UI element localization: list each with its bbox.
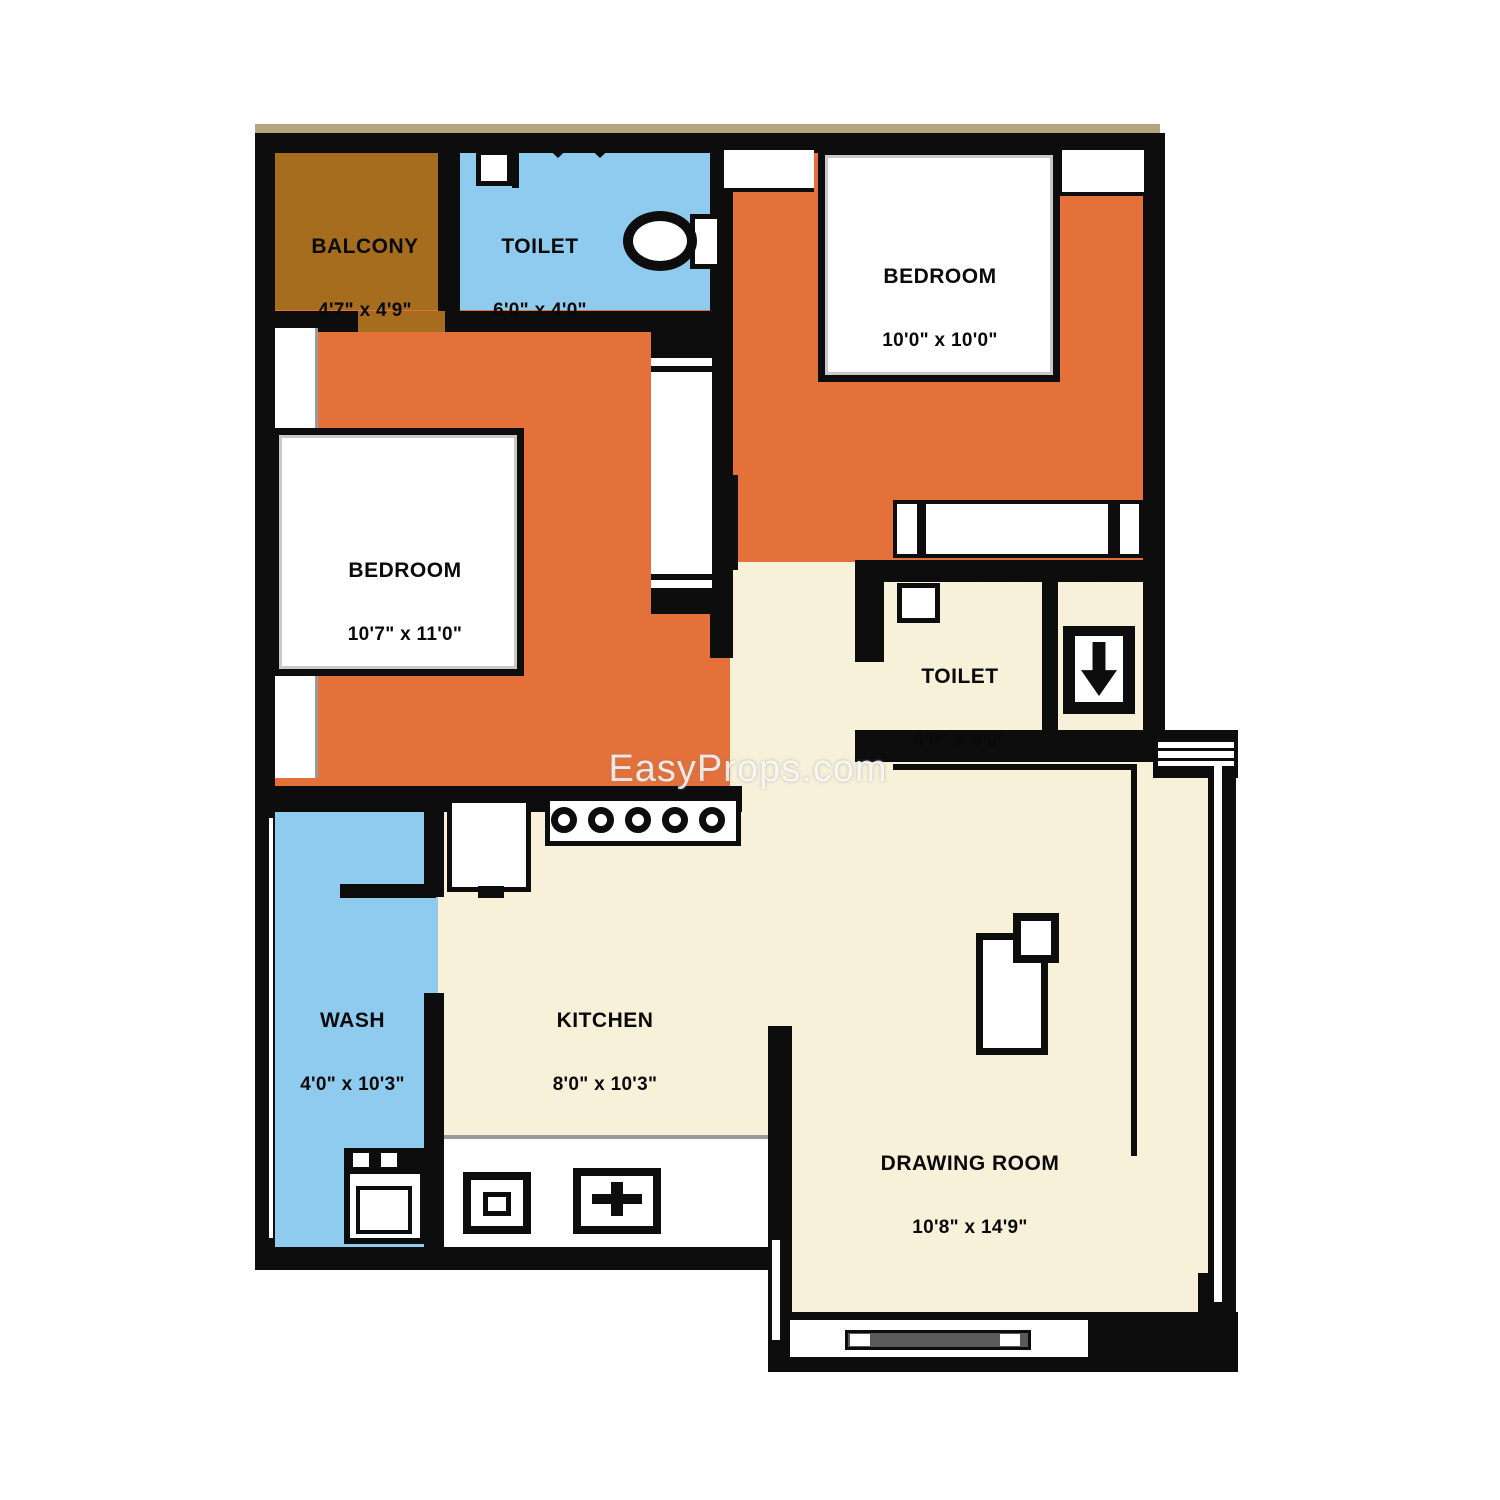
stove-burner-3 bbox=[625, 807, 651, 833]
washing-machine-dispenser-1 bbox=[353, 1153, 369, 1167]
room-dims: 10'0" x 10'0" bbox=[845, 326, 1035, 355]
door-strip-line-top bbox=[651, 366, 712, 372]
label-drawing: DRAWING ROOM 10'8" x 14'9" bbox=[840, 1115, 1100, 1275]
door-strip-bedrooms bbox=[651, 332, 712, 614]
window-top-right-line2 bbox=[1158, 758, 1234, 761]
stove-burner-5 bbox=[699, 807, 725, 833]
room-name: BEDROOM bbox=[845, 261, 1035, 294]
sink-faucet-v bbox=[611, 1182, 623, 1216]
room-name: TOILET bbox=[470, 231, 610, 264]
kitchen-platform bbox=[447, 798, 531, 892]
label-wash: WASH 4'0" x 10'3" bbox=[300, 972, 405, 1132]
room-name: DRAWING ROOM bbox=[840, 1148, 1100, 1181]
wardrobe-divider-left bbox=[917, 500, 926, 558]
tv-unit-corner-inner bbox=[1021, 921, 1051, 955]
window-bar-end-left bbox=[850, 1334, 870, 1346]
room-dims: 10'7" x 11'0" bbox=[310, 620, 500, 649]
stove-burner-2 bbox=[588, 807, 614, 833]
room-dims: 6'0" x 4'0" bbox=[470, 296, 610, 325]
label-toilet-mid: TOILET 6'0" x 4'0" bbox=[895, 628, 1025, 788]
wall-wash-stub bbox=[340, 884, 436, 898]
floor-plan: BALCONY 4'7" x 4'9" TOILET 6'0" x 4'0" B… bbox=[0, 0, 1500, 1500]
kitchen-platform-tab bbox=[478, 886, 504, 898]
label-balcony: BALCONY 4'7" x 4'9" bbox=[280, 198, 450, 358]
door-strip-cap-top bbox=[651, 332, 712, 358]
door-strip-line-bottom bbox=[651, 574, 712, 580]
label-kitchen: KITCHEN 8'0" x 10'3" bbox=[505, 972, 705, 1132]
room-dims: 10'8" x 14'9" bbox=[840, 1213, 1100, 1242]
label-toilet-top: TOILET 6'0" x 4'0" bbox=[470, 198, 610, 358]
door-kitchen-drawing bbox=[772, 1240, 780, 1340]
wall-toilet-mid-left bbox=[855, 560, 884, 662]
bedroom-right-niche-right bbox=[1058, 150, 1144, 196]
label-bedroom-left: BEDROOM 10'7" x 11'0" bbox=[310, 522, 500, 682]
room-name: BALCONY bbox=[280, 231, 450, 264]
room-name: BEDROOM bbox=[310, 555, 500, 588]
wall-wash-kitchen-lower bbox=[424, 993, 444, 1247]
window-top-right bbox=[1158, 742, 1234, 766]
window-top-right-line1 bbox=[1158, 748, 1234, 751]
wardrobe-icon bbox=[893, 500, 1143, 558]
watermark: EasyProps.com bbox=[598, 748, 898, 791]
washbasin-icon-mid bbox=[897, 583, 940, 623]
door-leaf-bedroom-right bbox=[730, 475, 738, 570]
wall-bottom-left bbox=[255, 1247, 790, 1270]
wall-toilet-mid-divider bbox=[1042, 582, 1058, 740]
bedroom-right-niche-left bbox=[724, 150, 814, 192]
room-name: WASH bbox=[300, 1005, 405, 1038]
washbasin-icon-top bbox=[476, 150, 512, 186]
toilet-top-frame-line bbox=[512, 148, 519, 188]
wall-toilet-bedroom bbox=[710, 133, 733, 658]
toilet-bowl-icon-top bbox=[623, 211, 697, 271]
window-wash-left bbox=[269, 818, 273, 1238]
wall-drawing-right-step bbox=[1198, 1273, 1212, 1372]
room-dims: 6'0" x 4'0" bbox=[895, 726, 1025, 755]
washing-machine-dispenser-2 bbox=[381, 1153, 397, 1167]
wardrobe-divider-right bbox=[1108, 500, 1120, 558]
room-name: TOILET bbox=[895, 661, 1025, 694]
sofa-line-v bbox=[1131, 764, 1137, 1156]
label-bedroom-right: BEDROOM 10'0" x 10'0" bbox=[845, 228, 1035, 388]
stove-burner-4 bbox=[662, 807, 688, 833]
appliance-icon-inner bbox=[483, 1192, 511, 1216]
room-dims: 8'0" x 10'3" bbox=[505, 1070, 705, 1099]
wall-right-upper bbox=[1143, 133, 1165, 740]
washing-machine-drum bbox=[356, 1186, 412, 1234]
window-bar-end-right bbox=[1000, 1334, 1020, 1346]
wall-drawing-right bbox=[1208, 738, 1236, 1372]
room-dims: 4'0" x 10'3" bbox=[300, 1070, 405, 1099]
room-dims: 4'7" x 4'9" bbox=[280, 296, 450, 325]
window-left-lower bbox=[275, 672, 318, 778]
stove-burner-1 bbox=[551, 807, 577, 833]
window-right-wall bbox=[1214, 766, 1222, 1302]
room-name: KITCHEN bbox=[505, 1005, 705, 1038]
door-strip-cap-bottom bbox=[651, 588, 712, 614]
